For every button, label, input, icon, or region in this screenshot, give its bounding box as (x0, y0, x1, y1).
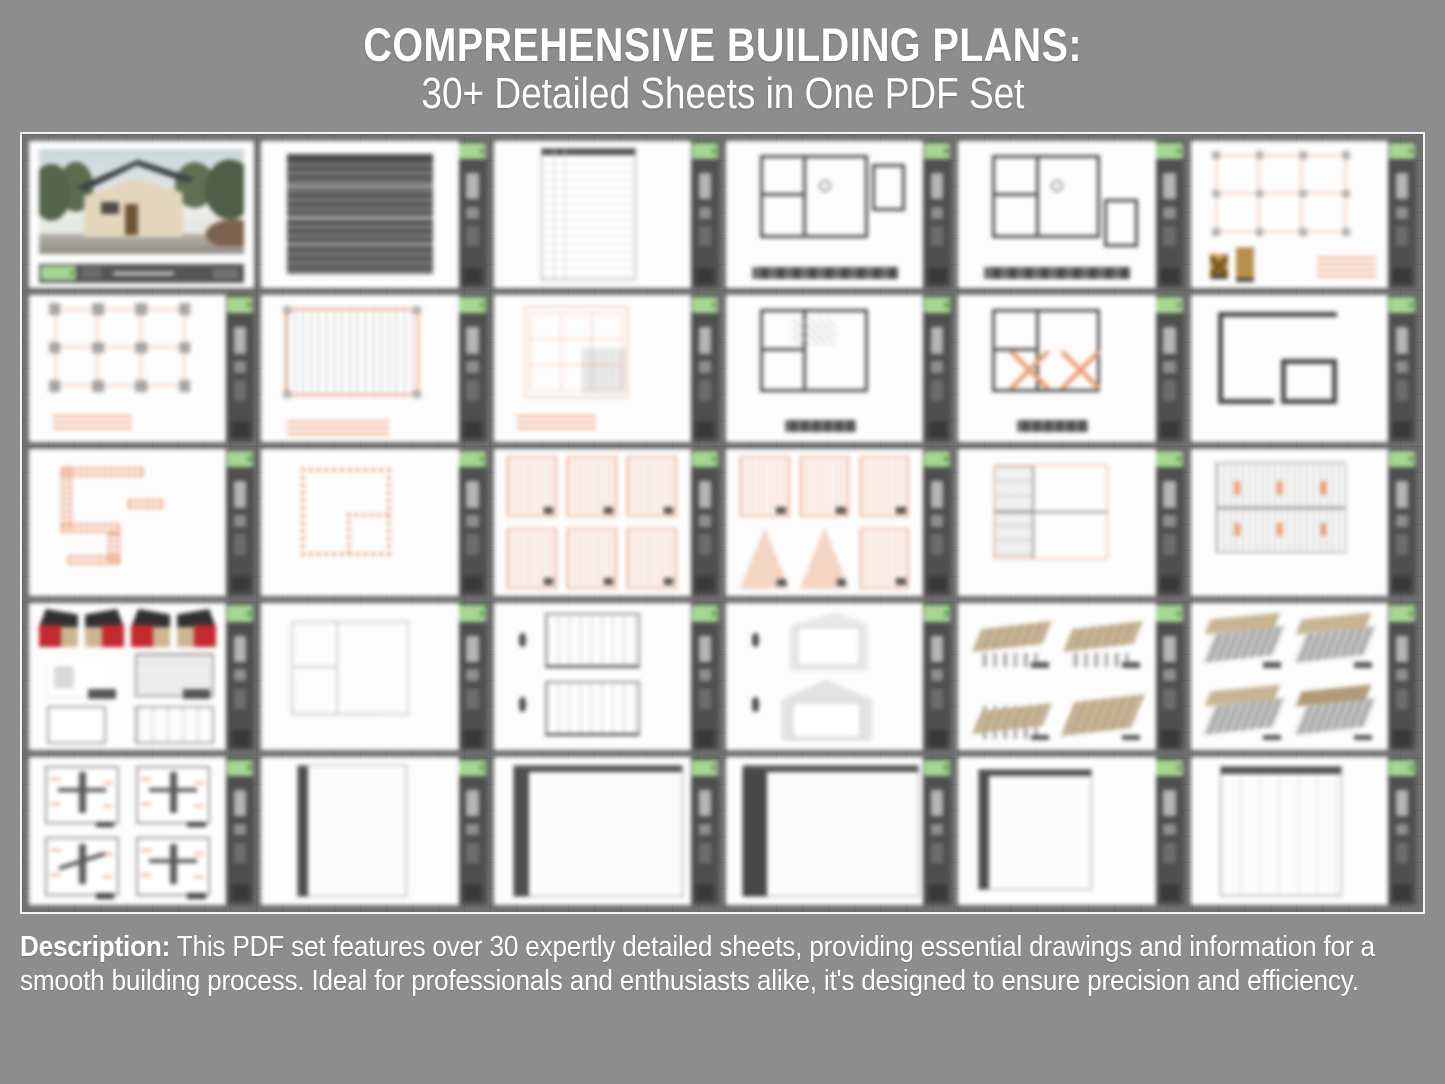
sheet-titleblock (1156, 141, 1184, 288)
qr-code-icon (1160, 730, 1179, 746)
drawing-shape (1343, 228, 1351, 236)
sheet-thumbnail-24 (1191, 603, 1416, 750)
qr-code-icon (1392, 422, 1411, 438)
drawing-shape (1212, 228, 1220, 236)
drawing-shape (1191, 603, 1388, 750)
sheet-titleblock (1156, 449, 1184, 596)
drawing-shape (1321, 523, 1327, 536)
specification-table (513, 765, 683, 897)
drawing-shape (1065, 686, 1140, 740)
drawing-shape (931, 173, 943, 199)
grid-cell (494, 757, 719, 904)
qr-code-icon (928, 885, 947, 901)
pile-grid (55, 309, 185, 386)
sheet-thumbnail-19 (29, 603, 254, 750)
drawing-shape (699, 361, 711, 373)
drawing-shape (1122, 662, 1140, 667)
drawing-shape (85, 627, 102, 647)
drawing-shape (1396, 843, 1408, 864)
wall-plan (301, 468, 392, 556)
sheet-thumbnail-1 (29, 141, 254, 288)
sheet-titleblock (226, 757, 254, 904)
drawing-shape (494, 603, 691, 750)
drawing-shape (287, 421, 390, 434)
drawing-shape (92, 304, 104, 316)
sheet-thumbnail-10 (726, 295, 951, 442)
drawing-shape (413, 390, 421, 398)
sheet-titleblock (1388, 141, 1416, 288)
grid-cell (29, 449, 254, 596)
drawing-shape (1317, 257, 1376, 281)
drawing-shape (1299, 228, 1307, 236)
sheet-titleblock (1388, 449, 1416, 596)
page-header: COMPREHENSIVE BUILDING PLANS: 30+ Detail… (0, 0, 1445, 118)
drawing-shape (1299, 151, 1307, 159)
drawing-shape (545, 681, 640, 735)
drawing-shape (466, 481, 478, 507)
grid-cell (726, 295, 951, 442)
sheet-tab-icon (459, 760, 485, 776)
sheet-thumbnail-29 (958, 757, 1183, 904)
sheet-tab-icon (692, 760, 718, 776)
drawing-shape (1298, 686, 1373, 740)
qr-code-icon (695, 576, 714, 592)
drawing-shape (29, 449, 226, 596)
drawing-shape (567, 528, 617, 589)
drawing-shape (1210, 254, 1228, 279)
description-label: Description: (20, 931, 170, 963)
page-subtitle: 30+ Detailed Sheets in One PDF Set (421, 71, 1024, 117)
drawing-shape (466, 207, 478, 219)
drawing-shape (61, 467, 144, 477)
sheet-titleblock (691, 757, 719, 904)
sheet-titleblock (459, 295, 487, 442)
sheet-tab-icon (459, 451, 485, 467)
grid-cell (494, 141, 719, 288)
floor-plan (760, 155, 868, 237)
drawing-shape (47, 706, 106, 744)
drawing-shape (1063, 621, 1142, 652)
drawing-shape (187, 893, 205, 898)
sheet-tab-icon (692, 605, 718, 621)
drawing-shape (466, 327, 478, 353)
sheet-thumbnail-22 (726, 603, 951, 750)
drawing-shape (466, 843, 478, 864)
sheet-titleblock (1388, 603, 1416, 750)
drawing-shape (699, 790, 711, 816)
qr-code-icon (231, 422, 250, 438)
drawing-shape (785, 420, 856, 432)
drawing-shape (1354, 662, 1372, 667)
isometric-framing-views (974, 613, 1140, 740)
drawing-shape (131, 625, 153, 647)
sheet-titleblock (226, 295, 254, 442)
qr-code-icon (1160, 576, 1179, 592)
sheet-tab-icon (459, 297, 485, 313)
drawing-shape (931, 824, 943, 836)
drawing-shape (136, 837, 211, 895)
drawing-shape (1061, 694, 1144, 735)
drawing-shape (413, 306, 421, 314)
drawing-shape (234, 824, 246, 836)
drawing-shape (29, 757, 226, 904)
sheet-thumbnail-23 (958, 603, 1183, 750)
sheet-thumbnail-14 (261, 449, 486, 596)
qr-code-icon (695, 885, 714, 901)
sheet-thumbnail-13 (29, 449, 254, 596)
sheet-thumbnail-28 (726, 757, 951, 904)
drawing-shape (1396, 515, 1408, 527)
drawing-shape (234, 843, 246, 864)
section-drawing (789, 612, 868, 671)
drawing-shape (931, 689, 943, 710)
legend-bar (984, 267, 1130, 279)
drawing-shape (931, 515, 943, 527)
floor-plan (760, 309, 868, 391)
drawing-shape (153, 627, 170, 647)
drawing-shape (1104, 199, 1138, 246)
drawing-shape (1212, 151, 1220, 159)
ceiling-plan (994, 465, 1108, 559)
drawing-shape (1396, 824, 1408, 836)
drawing-shape (1396, 790, 1408, 816)
drawing-shape (1163, 380, 1175, 401)
drawing-shape (1396, 669, 1408, 681)
drawing-shape (1343, 190, 1351, 198)
sheet-titleblock (1156, 295, 1184, 442)
drawing-shape (466, 689, 478, 710)
drawing-shape (49, 304, 61, 316)
drawing-shape (699, 843, 711, 864)
drawing-shape (61, 467, 73, 529)
description-text: This PDF set features over 30 expertly d… (20, 931, 1375, 997)
specification-table (742, 765, 919, 897)
qr-code-icon (463, 268, 482, 284)
drawing-shape (793, 319, 836, 345)
drawing-shape (177, 609, 216, 647)
drawing-shape (39, 625, 61, 647)
sheet-tab-icon (924, 760, 950, 776)
grid-cell (726, 449, 951, 596)
drawing-shape (1163, 361, 1175, 373)
wall-panel-elevations (740, 456, 910, 588)
drawing-shape (507, 456, 557, 517)
sheet-tab-icon (692, 297, 718, 313)
drawing-shape (92, 380, 104, 392)
drawing-shape (234, 380, 246, 401)
drawing-shape (519, 633, 526, 648)
sheet-titleblock (1156, 603, 1184, 750)
cover-title-text (113, 272, 175, 275)
drawing-shape (39, 609, 78, 647)
drawing-shape (102, 625, 124, 647)
drawing-shape (699, 207, 711, 219)
drawing-shape (45, 766, 120, 824)
drawing-shape (466, 636, 478, 662)
specification-table (978, 769, 1092, 890)
drawing-shape (1191, 757, 1388, 904)
drawing-shape (931, 380, 943, 401)
drawing-shape (1396, 361, 1408, 373)
sheet-titleblock (923, 449, 951, 596)
sheet-thumbnail-16 (726, 449, 951, 596)
notes-text-block (287, 154, 433, 275)
qr-code-icon (463, 422, 482, 438)
qr-code-icon (928, 268, 947, 284)
drawing-shape (1031, 735, 1049, 740)
drawing-shape (931, 636, 943, 662)
sheet-thumbnail-12 (1191, 295, 1416, 442)
drawing-shape (466, 173, 478, 199)
grid-cell (958, 757, 1183, 904)
drawing-shape (494, 757, 691, 904)
grid-cell (1191, 141, 1416, 288)
drawing-shape (1236, 247, 1254, 282)
sheet-thumbnail-4 (726, 141, 951, 288)
drawing-shape (131, 609, 170, 647)
drawing-shape (1396, 481, 1408, 507)
sheet-titleblock (226, 449, 254, 596)
page-title: COMPREHENSIVE BUILDING PLANS: (363, 20, 1081, 69)
drawing-shape (29, 141, 254, 288)
grid-cell (29, 603, 254, 750)
grid-cell (494, 603, 719, 750)
drawing-shape (1263, 662, 1281, 667)
sheet-thumbnail-15 (494, 449, 719, 596)
drawing-shape (1277, 481, 1283, 494)
drawing-shape (958, 141, 1155, 288)
drawing-shape (972, 621, 1051, 652)
drawing-shape (699, 515, 711, 527)
grid-cell (261, 603, 486, 750)
drawing-shape (29, 295, 226, 442)
description-paragraph: Description: This PDF set features over … (20, 930, 1424, 998)
drawing-shape (128, 499, 163, 509)
drawing-shape (53, 415, 132, 433)
drawing-shape (466, 790, 478, 816)
sheet-tab-icon (924, 297, 950, 313)
sheet-thumbnail-3 (494, 141, 719, 288)
drawing-shape (699, 669, 711, 681)
drawing-shape (627, 456, 677, 517)
drawing-shape (872, 164, 906, 211)
drawing-shape (234, 689, 246, 710)
sheet-titleblock (923, 141, 951, 288)
drawing-shape (1396, 226, 1408, 247)
drawing-shape (199, 216, 244, 245)
drawing-shape (283, 306, 291, 314)
sheet-thumbnail-7 (29, 295, 254, 442)
floor-plan-light (291, 621, 409, 715)
grid-cell (29, 757, 254, 904)
drawing-shape (517, 415, 596, 433)
drawing-shape (507, 528, 557, 589)
drawing-shape (1163, 636, 1175, 662)
drawing-shape (752, 633, 759, 648)
drawing-shape (726, 141, 923, 288)
sheet-index-table (541, 148, 636, 280)
drawing-shape (699, 327, 711, 353)
sheet-titleblock (459, 141, 487, 288)
drawing-shape (1354, 735, 1372, 740)
drawing-shape (234, 790, 246, 816)
sheet-tab-icon (1389, 297, 1415, 313)
sheet-tab-icon (1389, 451, 1415, 467)
drawing-shape (740, 456, 790, 517)
sheet-tab-icon (924, 451, 950, 467)
drawing-shape (261, 449, 458, 596)
sheet-titleblock (226, 603, 254, 750)
grid-cell (958, 603, 1183, 750)
sheet-tab-icon (227, 760, 253, 776)
drawing-shape (68, 555, 119, 565)
drawing-shape (1163, 226, 1175, 247)
thumbnail-grid (29, 141, 1416, 905)
qr-code-icon (928, 730, 947, 746)
drawing-shape (466, 380, 478, 401)
drawing-shape (466, 226, 478, 247)
drawing-shape (699, 481, 711, 507)
drawing-shape (1256, 151, 1264, 159)
drawing-shape (261, 141, 458, 288)
qr-code-icon (1392, 268, 1411, 284)
sheet-titleblock (1156, 757, 1184, 904)
sheet-tab-icon (1156, 760, 1182, 776)
drawing-shape (92, 342, 104, 354)
drawing-shape (96, 893, 114, 898)
drawing-shape (800, 528, 850, 589)
grid-cell (494, 295, 719, 442)
drawing-shape (494, 295, 691, 442)
sheet-titleblock (1388, 295, 1416, 442)
drawing-shape (1163, 689, 1175, 710)
drawing-shape (1396, 636, 1408, 662)
house-render-photo (39, 149, 244, 254)
drawing-shape (49, 380, 61, 392)
drawing-shape (1299, 190, 1307, 198)
specification-table (1220, 766, 1342, 896)
drawing-shape (261, 603, 458, 750)
qr-code-icon (1160, 422, 1179, 438)
drawing-shape (1191, 449, 1388, 596)
sheet-thumbnail-26 (261, 757, 486, 904)
drawing-shape (179, 304, 191, 316)
drawing-shape (49, 342, 61, 354)
drawing-shape (213, 270, 238, 277)
qr-code-icon (231, 730, 250, 746)
drawing-shape (466, 515, 478, 527)
sheet-titleblock (691, 295, 719, 442)
legend-bar (752, 267, 898, 279)
drawing-shape (860, 528, 910, 589)
qr-code-icon (695, 730, 714, 746)
drawing-shape (234, 636, 246, 662)
sheet-tab-icon (692, 451, 718, 467)
drawing-shape (1263, 735, 1281, 740)
sheet-titleblock (923, 757, 951, 904)
sheet-titleblock (1388, 757, 1416, 904)
qr-code-icon (231, 885, 250, 901)
drawing-shape (1212, 190, 1220, 198)
sheet-thumbnail-20 (261, 603, 486, 750)
drawing-shape (183, 689, 211, 699)
drawing-shape (699, 534, 711, 555)
grid-cell (261, 295, 486, 442)
drawing-shape (1206, 686, 1281, 740)
drawing-shape (752, 697, 759, 712)
drawing-shape (234, 327, 246, 353)
foundation-grid (1216, 155, 1346, 232)
drawing-shape (699, 824, 711, 836)
qr-code-icon (1160, 885, 1179, 901)
drawing-shape (931, 361, 943, 373)
drawing-shape (931, 481, 943, 507)
drawing-shape (1298, 613, 1373, 667)
drawing-shape (699, 226, 711, 247)
drawing-shape (125, 204, 137, 235)
sheet-thumbnail-17 (958, 449, 1183, 596)
drawing-shape (1277, 523, 1283, 536)
drawing-shape (1163, 790, 1175, 816)
drawing-shape (234, 669, 246, 681)
cover-titlebar (39, 264, 244, 282)
drawing-shape (187, 822, 205, 827)
sheet-tab-icon (1389, 605, 1415, 621)
drawing-shape (958, 757, 1155, 904)
sheet-tab-icon (1156, 451, 1182, 467)
drawing-shape (931, 534, 943, 555)
sheet-tab-icon (924, 605, 950, 621)
sheet-tab-icon (1156, 605, 1182, 621)
drawing-shape (136, 304, 148, 316)
drawing-shape (135, 706, 214, 744)
drawing-shape (61, 627, 78, 647)
sheet-titleblock (459, 757, 487, 904)
sheet-titleblock (459, 603, 487, 750)
drawing-shape (1061, 351, 1100, 389)
grid-cell (261, 141, 486, 288)
qr-code-icon (231, 576, 250, 592)
drawing-shape (1191, 141, 1388, 288)
sheet-tab-icon (459, 605, 485, 621)
drawing-shape (699, 636, 711, 662)
drawing-shape (781, 680, 872, 742)
drawing-shape (494, 449, 691, 596)
drawing-shape (931, 669, 943, 681)
drawing-shape (234, 481, 246, 507)
floor-framing-plan (285, 308, 419, 396)
drawing-shape (494, 141, 691, 288)
drawing-shape (931, 207, 943, 219)
sheet-titleblock (923, 295, 951, 442)
drawing-shape (1017, 420, 1088, 432)
sheet-thumbnail-6 (1191, 141, 1416, 288)
drawing-shape (1065, 613, 1140, 667)
drawing-shape (931, 790, 943, 816)
drawing-shape (45, 837, 120, 895)
wall-panel-elevations (507, 456, 677, 588)
drawing-shape (234, 361, 246, 373)
sheet-titleblock (691, 141, 719, 288)
drawing-shape (1396, 380, 1408, 401)
drawing-shape (82, 268, 100, 278)
qr-code-icon (695, 268, 714, 284)
qr-code-icon (1392, 730, 1411, 746)
sheet-tab-icon (41, 266, 76, 279)
drawing-shape (29, 603, 226, 750)
drawing-shape (1396, 327, 1408, 353)
grid-cell (29, 141, 254, 288)
